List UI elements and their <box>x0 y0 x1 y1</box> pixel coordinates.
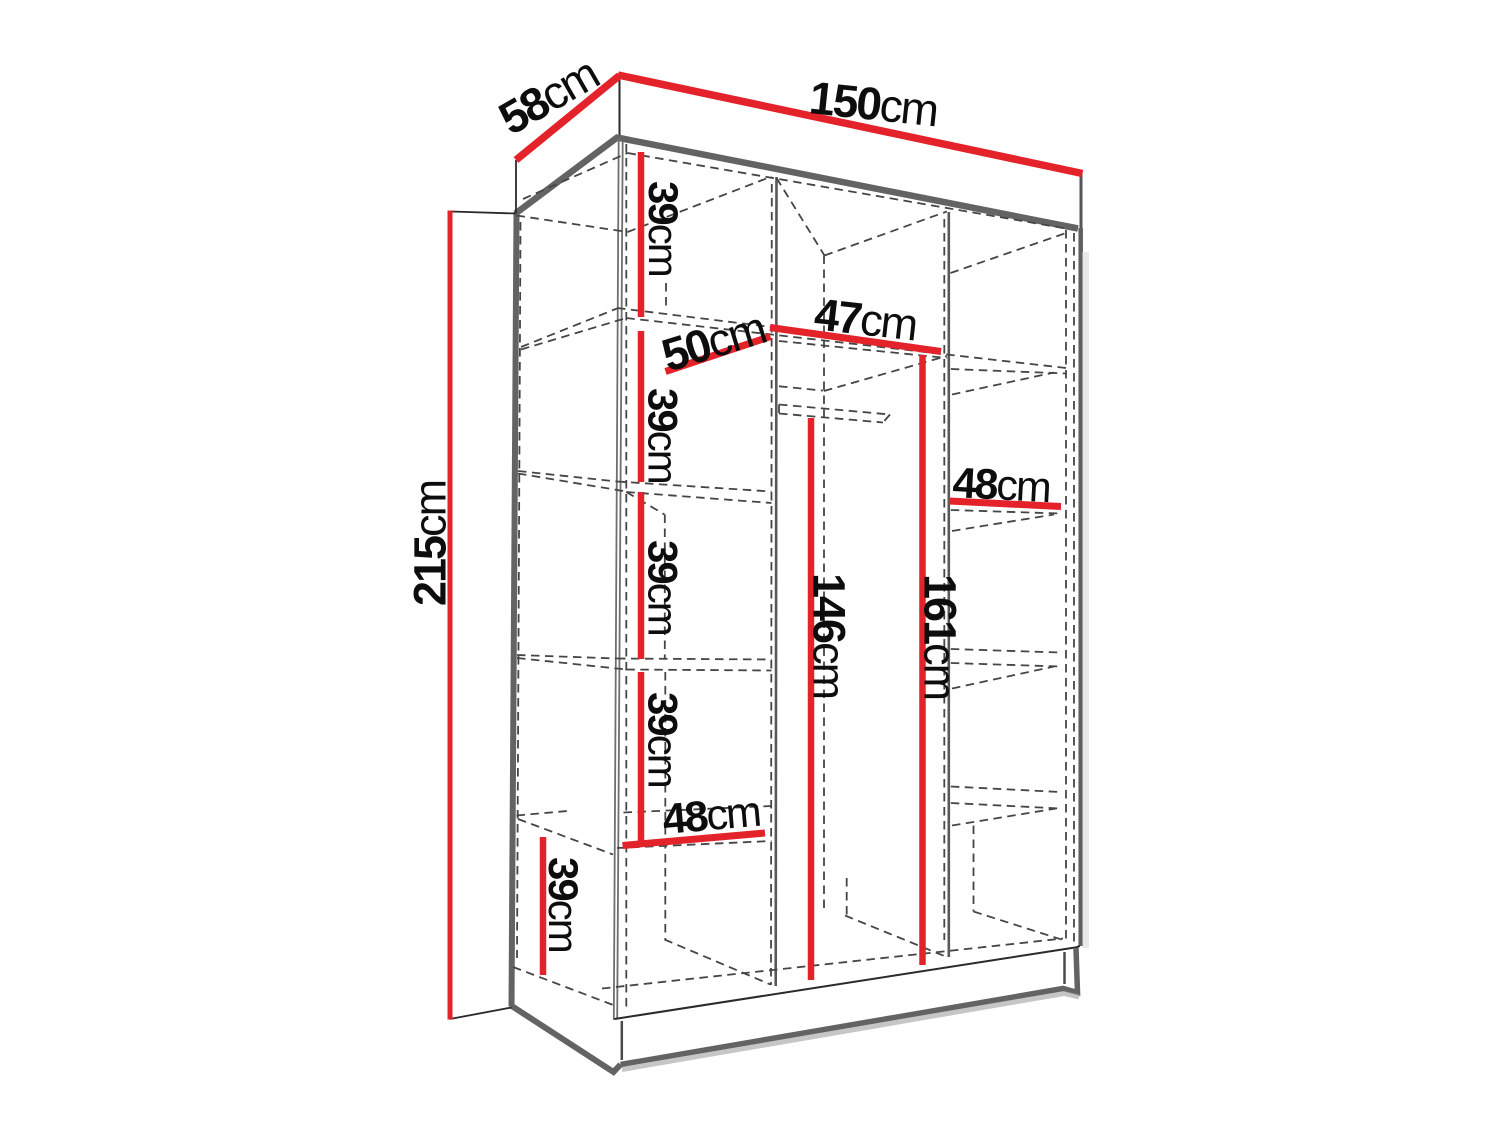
svg-text:39cm: 39cm <box>640 181 687 276</box>
svg-text:150cm: 150cm <box>807 71 940 136</box>
svg-text:50cm: 50cm <box>656 301 771 381</box>
svg-text:39cm: 39cm <box>540 857 587 952</box>
svg-text:39cm: 39cm <box>640 388 687 483</box>
svg-text:39cm: 39cm <box>640 540 687 635</box>
svg-text:48cm: 48cm <box>661 788 762 844</box>
svg-text:39cm: 39cm <box>640 692 687 787</box>
svg-text:48cm: 48cm <box>951 459 1051 512</box>
svg-text:215cm: 215cm <box>405 481 456 606</box>
svg-text:146cm: 146cm <box>804 573 855 698</box>
svg-text:161cm: 161cm <box>915 574 966 699</box>
